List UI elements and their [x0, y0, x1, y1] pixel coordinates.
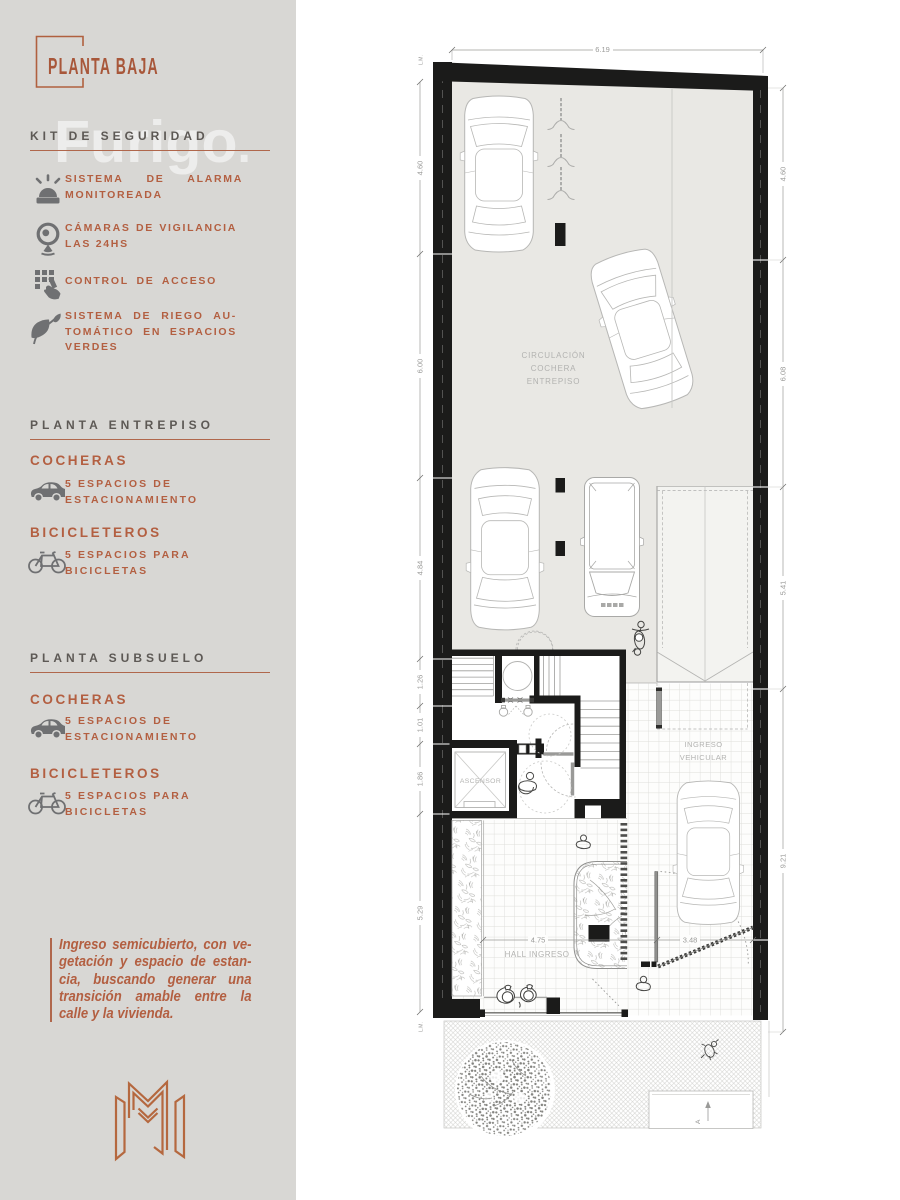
svg-text:9.21: 9.21 [778, 854, 787, 869]
svg-text:VEHICULAR: VEHICULAR [680, 753, 728, 762]
svg-text:INGRESO: INGRESO [684, 740, 722, 749]
svg-text:ASCENSOR: ASCENSOR [460, 778, 501, 785]
svg-text:L.M.: L.M. [419, 1022, 425, 1032]
svg-text:5.41: 5.41 [778, 581, 787, 596]
svg-text:1.01: 1.01 [415, 718, 424, 733]
svg-text:4.60: 4.60 [778, 167, 787, 182]
svg-text:4.60: 4.60 [415, 161, 424, 176]
svg-text:6.00: 6.00 [415, 359, 424, 374]
svg-text:5.29: 5.29 [415, 906, 424, 921]
svg-text:COCHERA: COCHERA [531, 364, 577, 373]
svg-text:6.08: 6.08 [778, 367, 787, 382]
svg-text:ENTREPISO: ENTREPISO [527, 377, 580, 386]
svg-text:CIRCULACIÓN: CIRCULACIÓN [522, 351, 586, 360]
svg-text:4.75: 4.75 [531, 936, 546, 945]
svg-text:4.84: 4.84 [415, 561, 424, 576]
svg-text:1.86: 1.86 [415, 772, 424, 787]
svg-text:L.M.: L.M. [419, 55, 425, 65]
svg-text:HALL INGRESO: HALL INGRESO [505, 950, 570, 959]
svg-text:1.26: 1.26 [415, 675, 424, 690]
svg-text:6.19: 6.19 [595, 45, 610, 54]
svg-text:3.48: 3.48 [683, 936, 698, 945]
svg-text:A: A [695, 1119, 702, 1124]
